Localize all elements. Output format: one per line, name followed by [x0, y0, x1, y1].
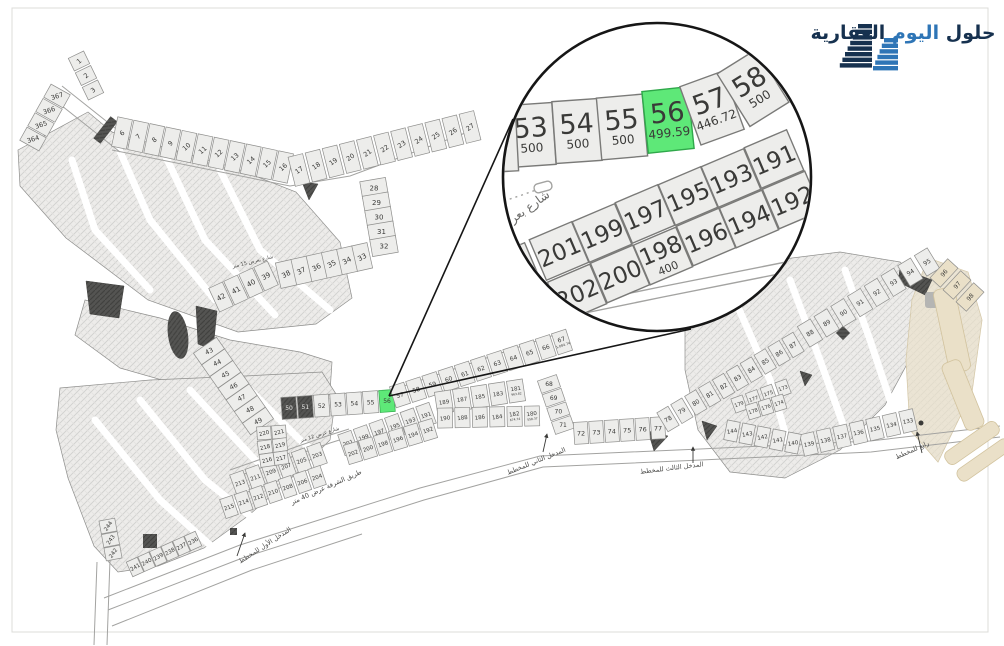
facility-area [86, 281, 124, 318]
plot-number-52: 52 [318, 403, 326, 410]
entrance-arrow [543, 434, 547, 452]
plot-number-30: 30 [375, 214, 384, 222]
logo-building-bar [842, 58, 872, 62]
road-line [94, 562, 97, 645]
logo-building-bar [884, 38, 898, 42]
plot-row: 123 [68, 51, 103, 100]
logo-building-bar [880, 49, 898, 53]
plot-number-55: 55 [367, 399, 375, 406]
plot-number-32: 32 [380, 243, 389, 251]
facility-area [143, 534, 157, 548]
logo-building-bar [873, 66, 898, 70]
entrance-arrow [237, 533, 245, 556]
plot-number-68: 68 [545, 381, 553, 388]
logo-word-1: حلول [946, 22, 996, 44]
logo-building-bar [840, 63, 872, 67]
logo-building-bar [848, 46, 872, 50]
plot-row: 1718192021222324252627 [288, 111, 481, 187]
logo-building-bar [855, 30, 872, 34]
plot-number-77: 77 [654, 424, 662, 432]
plot-number-31: 31 [377, 228, 386, 236]
logo-building-bar [858, 24, 872, 28]
logo-building-bar [853, 35, 872, 39]
plot-number-50: 50 [285, 405, 293, 412]
plot-number-70: 70 [555, 408, 563, 415]
plot-number-76: 76 [638, 425, 646, 433]
plot-number-53: 53 [334, 402, 342, 409]
map-label: المدخل الثاني للمخطط [506, 446, 567, 477]
plot-number-29: 29 [372, 199, 381, 207]
plot-row: 68697071 [537, 375, 574, 435]
magnified-plot-number-203: 203 [487, 253, 538, 294]
logo-building-bar [875, 60, 898, 64]
plot-row: 180558.37182674.74184186188190 [437, 406, 539, 428]
subdivision-map-canvas: 6789101112131415161718192021222324252627… [0, 0, 1004, 646]
map-label: رابع للمخطط [894, 439, 930, 461]
magnified-plot-blank [501, 283, 560, 341]
buildings-logo-icon [828, 22, 906, 72]
logo-building-bar [850, 41, 872, 45]
plot-number-181: 181963.82 [510, 386, 522, 397]
plot-number-75: 75 [623, 426, 631, 434]
plot-number-56: 56 [383, 398, 391, 405]
plot-number-73: 73 [592, 428, 600, 436]
plot-number-72: 72 [577, 429, 585, 437]
plot-number-182: 182674.74 [509, 411, 521, 422]
plot-number-69: 69 [550, 395, 558, 402]
logo-building-bar [877, 55, 898, 59]
plot-number-71: 71 [559, 422, 567, 429]
plot-number-74: 74 [608, 427, 616, 435]
plot-number-54: 54 [351, 400, 359, 407]
company-logo: حلول اليوم العقارية [828, 22, 978, 44]
plot-number-51: 51 [302, 404, 310, 411]
logo-building-bar [845, 52, 872, 56]
facility-area [302, 182, 318, 200]
logo-building-bar [882, 44, 898, 48]
map-dot [919, 421, 924, 426]
facility-area [230, 528, 237, 535]
plot-number-180: 180558.37 [526, 411, 538, 422]
land-plot-map-page: 6789101112131415161718192021222324252627… [0, 0, 1004, 646]
plot-number-28: 28 [370, 185, 379, 193]
